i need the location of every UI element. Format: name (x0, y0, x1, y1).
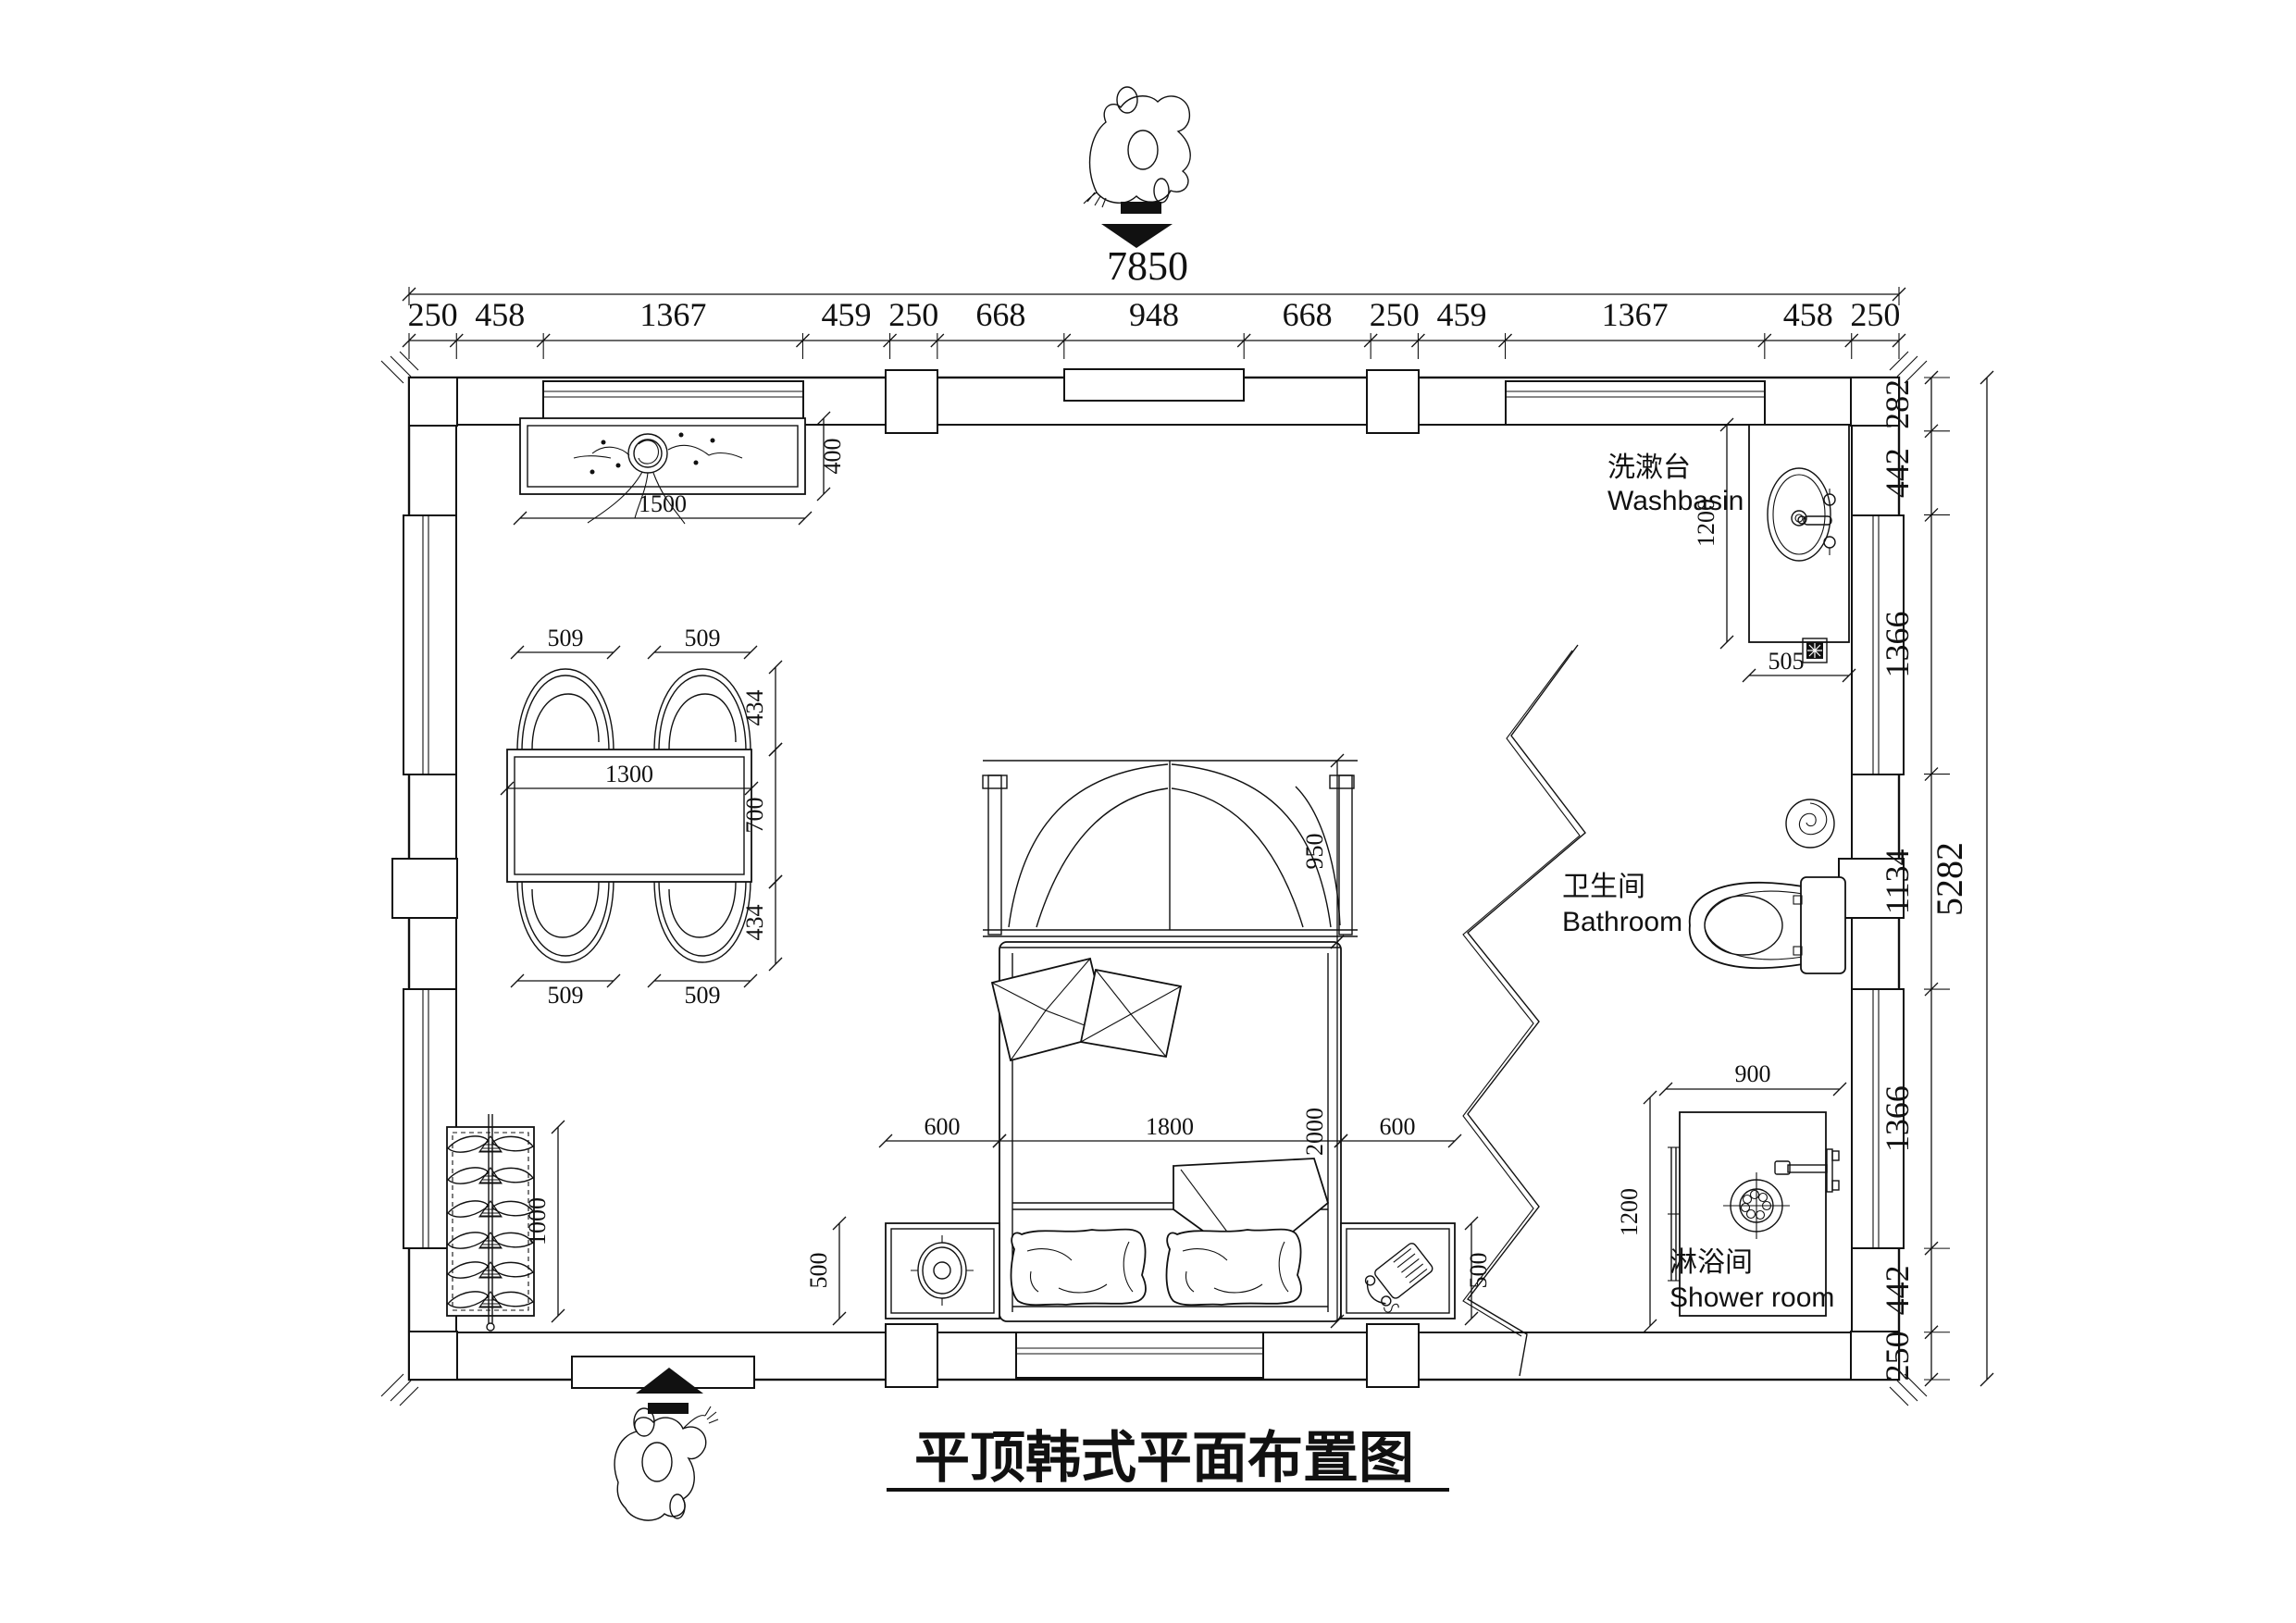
svg-text:442: 442 (1879, 448, 1916, 498)
pillow (1011, 1230, 1146, 1306)
svg-text:948: 948 (1129, 296, 1179, 333)
corner-column (409, 378, 457, 426)
dim-bed-length: 2000 (1301, 1108, 1328, 1156)
entry-door-top (1064, 369, 1244, 401)
svg-text:458: 458 (1783, 296, 1833, 333)
dim-bed-right: 600 (1380, 1113, 1416, 1140)
entry-arrow-top (1101, 202, 1173, 248)
wall-column (886, 1324, 937, 1387)
wall-column (886, 370, 937, 433)
toilet-tank (1801, 877, 1845, 973)
wall-column (392, 859, 457, 918)
dim-chair-depth: 434 (741, 690, 768, 726)
svg-text:250: 250 (888, 296, 938, 333)
dim-bed-width: 1800 (1146, 1113, 1194, 1140)
shower-label-en: Shower room (1669, 1282, 1834, 1313)
svg-text:250: 250 (1370, 296, 1420, 333)
svg-text:459: 459 (822, 296, 872, 333)
svg-text:250: 250 (1850, 296, 1900, 333)
washbasin-label-en: Washbasin (1607, 486, 1744, 516)
dim-chair-width: 509 (685, 625, 721, 651)
dim-washbasin-depth: 505 (1769, 648, 1805, 675)
dim-nightstand: 500 (1465, 1253, 1492, 1289)
dim-table-depth: 700 (741, 798, 768, 834)
svg-text:1366: 1366 (1879, 611, 1916, 677)
dim-shower-depth: 1200 (1616, 1188, 1643, 1236)
wardrobe (447, 1114, 534, 1331)
dim-bed-headboard: 950 (1301, 834, 1328, 870)
floor-plan-svg: 2504581367459250668948668250459136745825… (0, 0, 2296, 1623)
shower-label-cn: 淋浴间 (1669, 1247, 1753, 1278)
wall-column (1367, 370, 1419, 433)
dim-top-total: 7850 (1107, 243, 1188, 289)
washbasin-label-cn: 洗漱台 (1607, 452, 1691, 483)
svg-text:282: 282 (1879, 379, 1916, 429)
svg-text:1134: 1134 (1879, 849, 1916, 914)
pillow (1167, 1230, 1301, 1306)
washbasin-counter (1749, 425, 1849, 663)
dim-table-width: 1300 (605, 761, 653, 787)
window-bottom (1016, 1332, 1263, 1378)
dim-chair-depth: 434 (741, 905, 768, 941)
svg-text:1367: 1367 (639, 296, 706, 333)
svg-text:458: 458 (475, 296, 525, 333)
nightstand-left (886, 1223, 999, 1319)
dim-wardrobe: 1000 (524, 1197, 551, 1245)
person-figure-top (1084, 87, 1190, 207)
floor-plan-page: 2504581367459250668948668250459136745825… (0, 0, 2296, 1623)
dim-console-depth: 400 (819, 439, 846, 475)
dim-bed-left: 600 (925, 1113, 961, 1140)
svg-text:250: 250 (408, 296, 458, 333)
dim-shower-width: 900 (1735, 1060, 1771, 1087)
nightstand-right (1341, 1223, 1455, 1319)
svg-text:250: 250 (1879, 1331, 1916, 1381)
svg-text:442: 442 (1879, 1265, 1916, 1315)
window-top-right (1506, 381, 1765, 425)
svg-text:459: 459 (1436, 296, 1486, 333)
dim-chair-width: 509 (685, 982, 721, 1009)
bathroom-label-en: Bathroom (1562, 907, 1682, 937)
window-left-upper (403, 515, 456, 774)
drawing-title: 平顶韩式平面布置图 (887, 1427, 1449, 1490)
dim-right-total: 5282 (1929, 842, 1970, 916)
svg-text:668: 668 (975, 296, 1025, 333)
dim-chair-width: 509 (548, 982, 584, 1009)
corner-column (409, 1332, 457, 1380)
dim-nightstand: 500 (805, 1253, 832, 1289)
dim-chair-width: 509 (548, 625, 584, 651)
person-figure-bottom (614, 1406, 718, 1520)
bathroom-label-cn: 卫生间 (1562, 872, 1645, 902)
wall-column (1367, 1324, 1419, 1387)
page-title: 平顶韩式平面布置图 (914, 1427, 1414, 1489)
svg-text:1367: 1367 (1602, 296, 1669, 333)
svg-text:1366: 1366 (1879, 1085, 1916, 1152)
dim-console-width: 1500 (639, 490, 687, 517)
svg-text:668: 668 (1283, 296, 1333, 333)
